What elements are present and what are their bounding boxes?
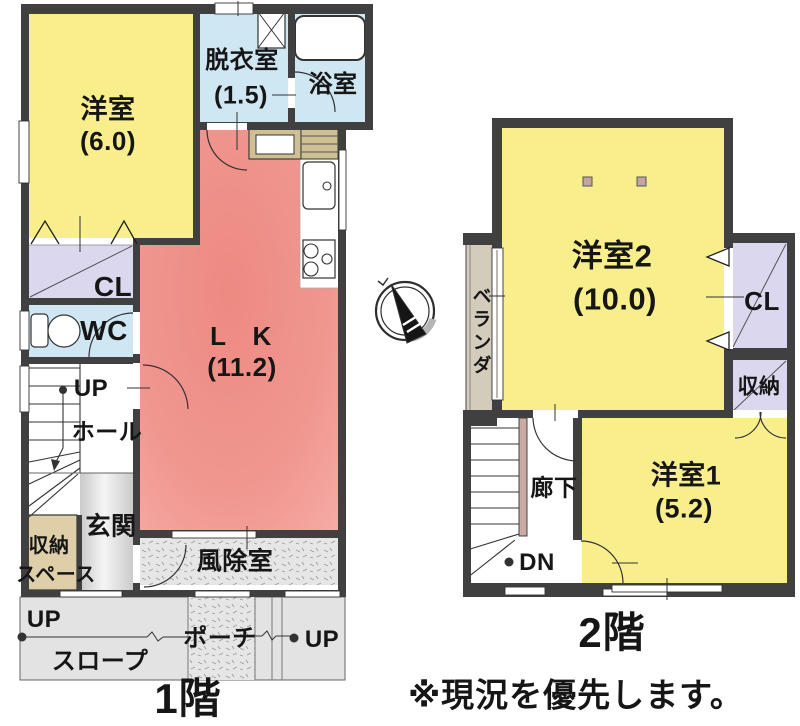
room-label-wc: WC [80, 317, 128, 345]
porch-label: ポーチ [183, 627, 257, 651]
stairs-up-label: UP [74, 377, 108, 401]
stair-handrail [519, 418, 527, 536]
veranda-label: ベランダ [471, 286, 490, 378]
room-label-cl2: CL [744, 288, 780, 314]
ceiling-marker [637, 177, 646, 186]
room-size-yoshitsu2: (10.0) [573, 284, 657, 315]
porch-up-dot [290, 634, 299, 643]
ceiling-marker [583, 177, 592, 186]
room-label-shuno2: 収納 [738, 377, 781, 398]
room-label-lk: L K [210, 323, 272, 349]
floorplan-canvas: 洋室 (6.0) 脱衣室 (1.5) 浴室 CL WC UP ホール L K (… [0, 0, 800, 726]
porch-up-label: UP [305, 628, 339, 652]
room-size-yoshitsu1: (5.2) [655, 496, 713, 523]
bathtub-icon [295, 16, 365, 60]
room-label-datsuishitsu: 脱衣室 [205, 49, 279, 73]
slope-label: スロープ [52, 650, 149, 674]
veranda-window [492, 248, 503, 400]
stair-arrow-icon [51, 459, 60, 471]
room-size-yoshitsu6: (6.0) [80, 128, 136, 154]
room-label-yoshitsu6: 洋室 [81, 97, 136, 124]
slope-up-dot [18, 633, 27, 642]
floor2-stairs [467, 418, 527, 578]
room-label-roka: 廊下 [531, 477, 578, 500]
disclaimer-note: ※現況を優先します。 [408, 679, 744, 712]
window [215, 3, 253, 14]
dn-dot [505, 558, 514, 567]
room-label-yoshitsu1: 洋室1 [651, 463, 722, 490]
window [172, 531, 256, 538]
stairs-dn-label: DN [519, 551, 555, 575]
window [195, 591, 250, 597]
sink-faucet-icon [323, 182, 331, 190]
room-label-yokushitsu: 浴室 [309, 73, 358, 97]
window [285, 591, 340, 597]
room-label-hall: ホール [72, 421, 143, 444]
room-size-datsuishitsu: (1.5) [214, 84, 268, 109]
room-label-fujoshitsu: 風除室 [197, 550, 274, 575]
door-arc [533, 418, 577, 461]
room-size-lk: (11.2) [207, 354, 277, 380]
room-label-yoshitsu2: 洋室2 [572, 241, 653, 272]
floor2-title: 2階 [578, 612, 645, 654]
entrance-door [60, 591, 122, 597]
window [20, 311, 29, 350]
toilet-icon [31, 314, 48, 347]
room-label-shuno-space-2: スペース [16, 565, 96, 585]
room-label-shuno-space-1: 収納 [29, 536, 70, 556]
window [20, 366, 29, 412]
floor1-title: 1階 [154, 678, 221, 720]
room-label-genkan: 玄関 [85, 515, 136, 540]
kitchen-shelf [301, 128, 338, 159]
window [339, 150, 346, 230]
window [19, 121, 29, 183]
window [505, 587, 545, 595]
compass-north-icon [376, 278, 434, 343]
room-label-cl1: CL [94, 273, 132, 301]
slope-up-label: UP [27, 608, 61, 632]
